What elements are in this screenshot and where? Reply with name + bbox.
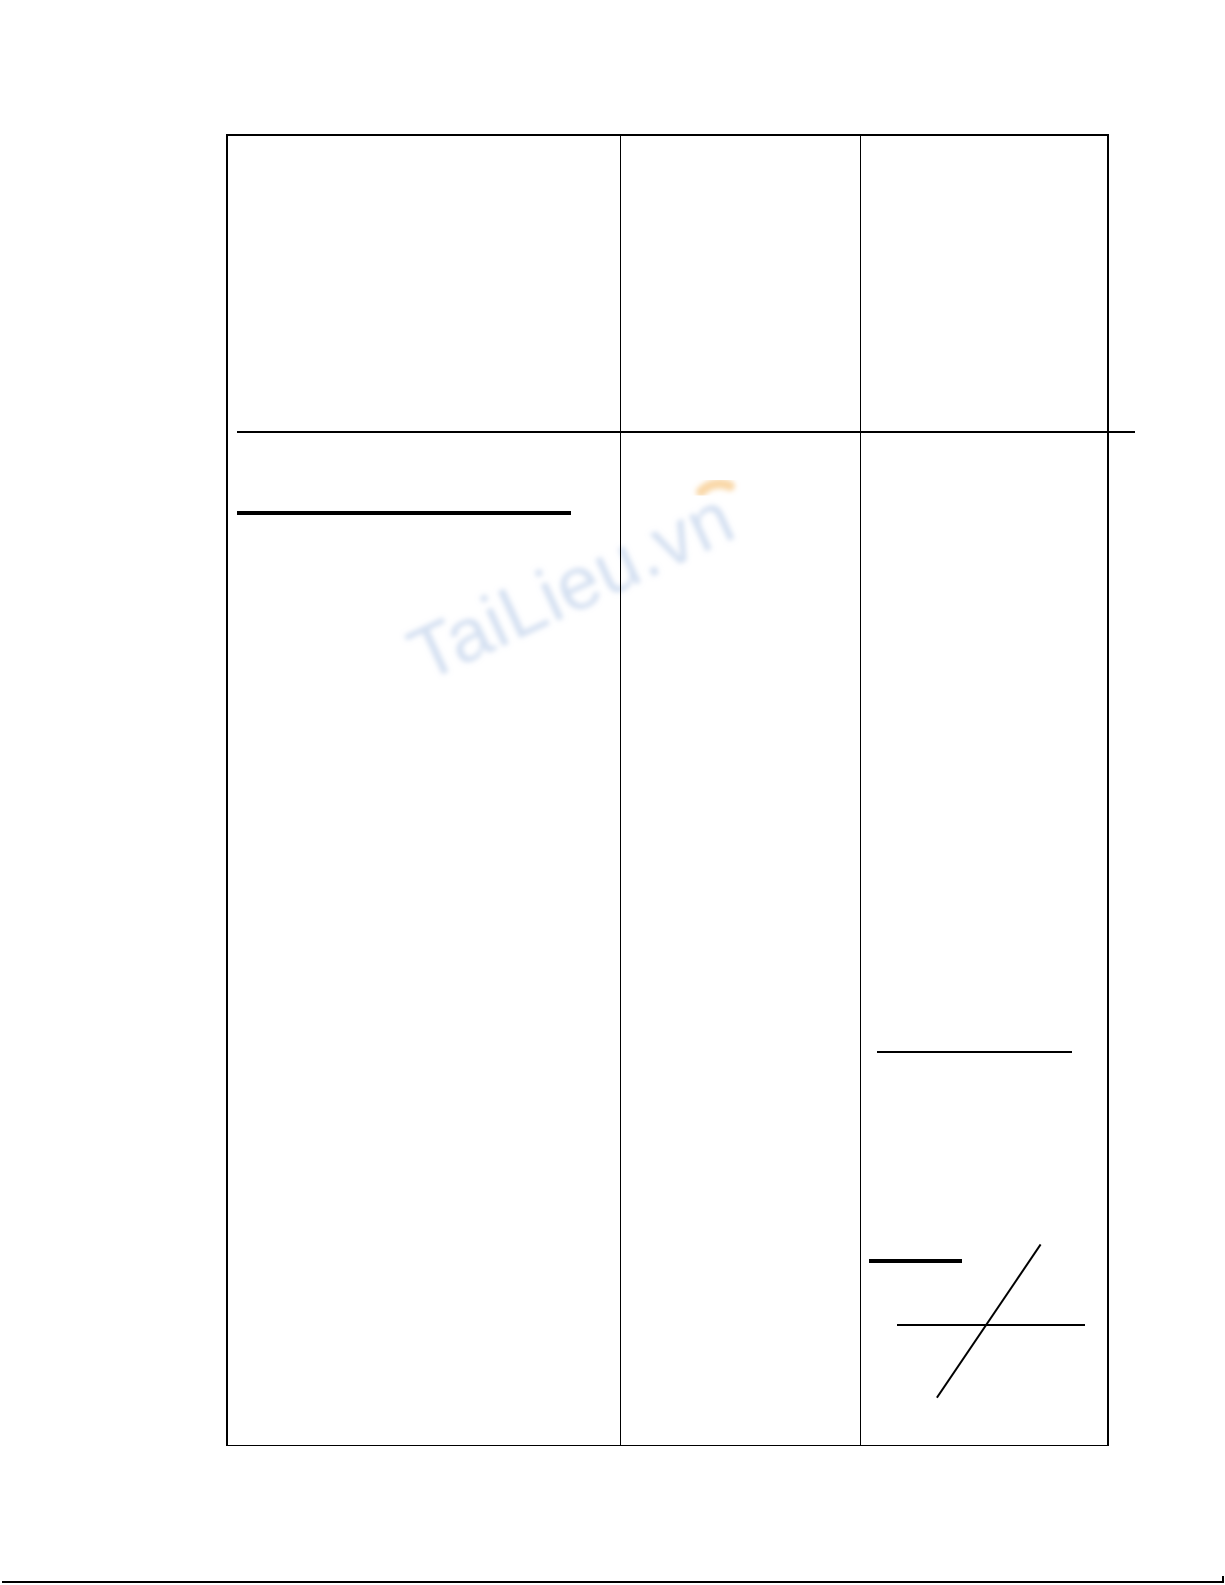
svg-text:TaiLieu.vn: TaiLieu.vn [396, 474, 747, 697]
